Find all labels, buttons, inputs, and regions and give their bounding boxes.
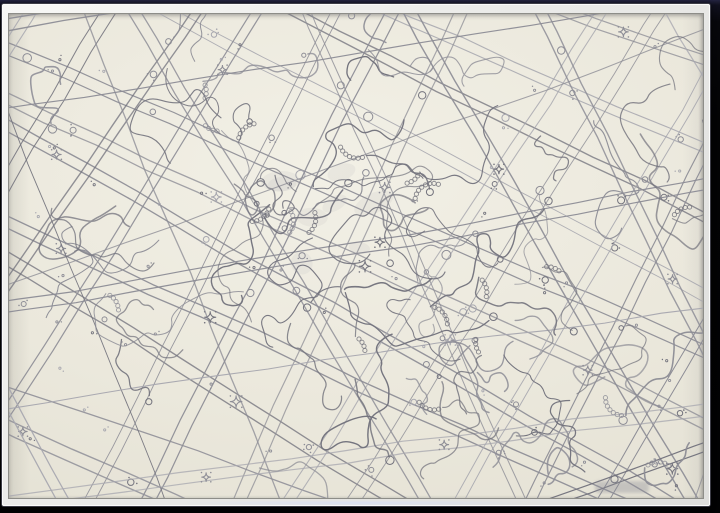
signature-smudge [595,481,649,493]
artwork-paper [9,14,703,498]
lattice-doodle-drawing [9,14,703,498]
artwork-frame [2,4,710,506]
